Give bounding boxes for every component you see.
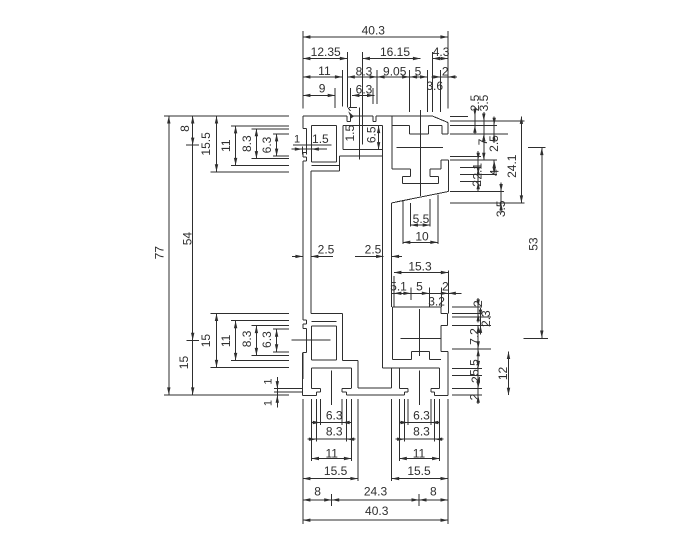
svg-text:5: 5 <box>416 280 423 294</box>
svg-text:9: 9 <box>319 82 326 96</box>
svg-text:24.3: 24.3 <box>364 485 388 499</box>
svg-text:8: 8 <box>314 485 321 499</box>
svg-text:4: 4 <box>488 169 502 176</box>
svg-text:2: 2 <box>468 393 482 400</box>
svg-text:2.3: 2.3 <box>479 310 493 327</box>
svg-text:1.5: 1.5 <box>343 125 357 142</box>
svg-text:8.3: 8.3 <box>326 425 343 439</box>
svg-text:3.5: 3.5 <box>494 200 508 217</box>
svg-text:5: 5 <box>415 65 422 79</box>
svg-text:1: 1 <box>294 134 300 146</box>
svg-text:2.5: 2.5 <box>365 243 382 257</box>
svg-text:6.5: 6.5 <box>365 126 379 143</box>
svg-text:1: 1 <box>263 378 275 384</box>
svg-text:5.1: 5.1 <box>390 280 407 294</box>
svg-text:4.3: 4.3 <box>433 45 450 59</box>
svg-text:6.3: 6.3 <box>356 82 373 96</box>
svg-text:6.3: 6.3 <box>260 136 274 153</box>
svg-text:10: 10 <box>415 229 429 243</box>
svg-text:15.5: 15.5 <box>324 464 348 478</box>
svg-text:3.6: 3.6 <box>426 79 443 93</box>
svg-text:8.3: 8.3 <box>413 425 430 439</box>
svg-text:8.3: 8.3 <box>356 65 373 79</box>
svg-text:11: 11 <box>219 139 233 152</box>
svg-text:15.3: 15.3 <box>408 260 432 274</box>
svg-text:53: 53 <box>527 237 541 251</box>
svg-text:8.3: 8.3 <box>240 330 254 347</box>
svg-text:40.3: 40.3 <box>362 23 386 37</box>
svg-text:8: 8 <box>178 125 192 132</box>
svg-text:2.5: 2.5 <box>318 243 335 257</box>
svg-text:8.3: 8.3 <box>240 135 254 152</box>
svg-text:7.2: 7.2 <box>468 328 482 345</box>
svg-text:2: 2 <box>470 180 484 187</box>
svg-text:6.3: 6.3 <box>326 409 343 423</box>
svg-text:3.5: 3.5 <box>477 94 491 111</box>
svg-text:12.35: 12.35 <box>311 45 341 59</box>
svg-text:15.5: 15.5 <box>199 132 213 156</box>
svg-text:11: 11 <box>219 334 233 347</box>
svg-text:12: 12 <box>496 367 510 381</box>
svg-text:11: 11 <box>318 64 331 78</box>
svg-text:1.5: 1.5 <box>312 132 329 146</box>
svg-text:24.1: 24.1 <box>505 154 519 178</box>
svg-text:3.2: 3.2 <box>428 294 445 308</box>
svg-text:15: 15 <box>177 356 191 370</box>
svg-text:11: 11 <box>325 447 338 461</box>
svg-text:77: 77 <box>153 246 167 260</box>
svg-text:2: 2 <box>471 300 485 307</box>
svg-text:6.3: 6.3 <box>260 331 274 348</box>
svg-text:9.05: 9.05 <box>383 65 407 79</box>
svg-text:15: 15 <box>199 334 213 348</box>
svg-text:11: 11 <box>413 447 426 461</box>
svg-text:2.1: 2.1 <box>471 163 485 180</box>
svg-text:8: 8 <box>430 485 437 499</box>
svg-text:2: 2 <box>442 65 449 79</box>
svg-text:1: 1 <box>263 400 275 406</box>
svg-text:5.5: 5.5 <box>468 359 482 376</box>
svg-text:2: 2 <box>442 280 449 294</box>
svg-text:40.3: 40.3 <box>365 504 389 518</box>
svg-text:2: 2 <box>469 376 483 383</box>
svg-text:6.3: 6.3 <box>413 409 430 423</box>
svg-text:54: 54 <box>181 232 195 246</box>
svg-text:2.5: 2.5 <box>487 135 501 152</box>
svg-text:15.5: 15.5 <box>407 464 431 478</box>
svg-text:16.15: 16.15 <box>380 45 410 59</box>
svg-text:5.5: 5.5 <box>413 212 430 226</box>
